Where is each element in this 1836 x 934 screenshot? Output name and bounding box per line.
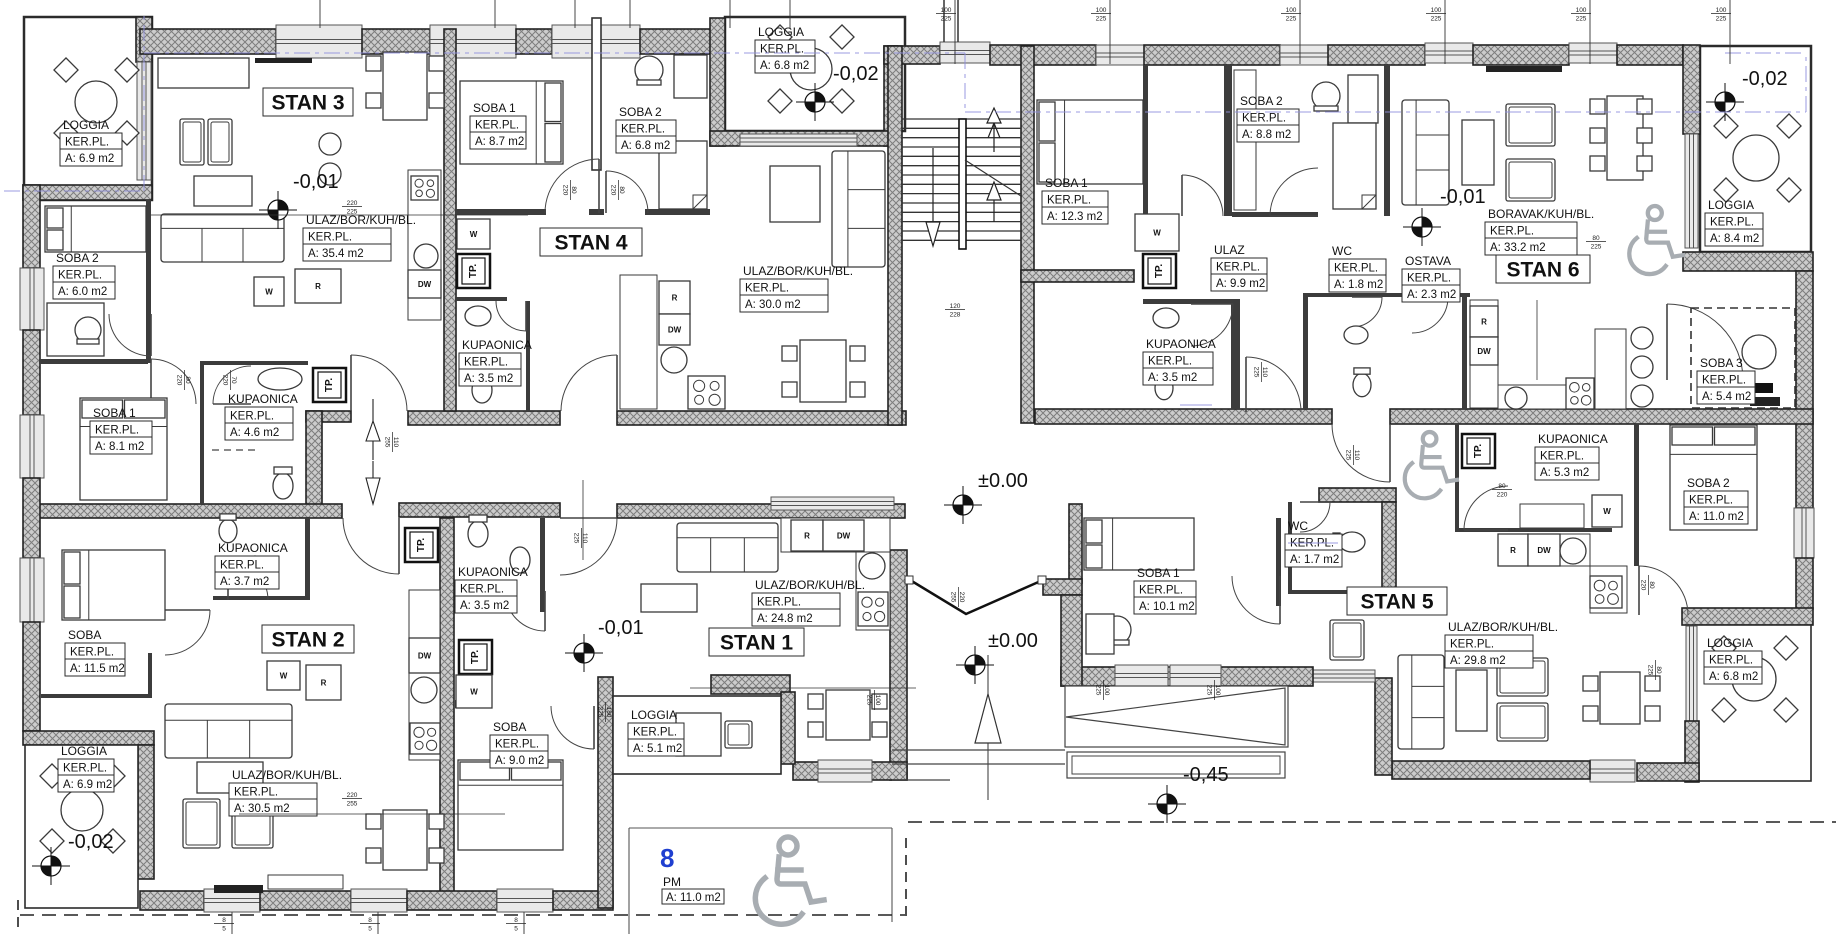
svg-text:A: 3.5 m2: A: 3.5 m2 bbox=[460, 600, 509, 612]
svg-text:SOBA 2: SOBA 2 bbox=[56, 251, 99, 265]
svg-text:W: W bbox=[265, 287, 273, 296]
svg-text:KUPAONICA: KUPAONICA bbox=[1538, 432, 1608, 446]
svg-text:KER.PL.: KER.PL. bbox=[621, 124, 665, 136]
svg-text:220: 220 bbox=[562, 185, 569, 196]
svg-text:A: 11.0 m2: A: 11.0 m2 bbox=[1689, 511, 1744, 523]
svg-text:100: 100 bbox=[1576, 7, 1587, 14]
svg-text:KER.PL.: KER.PL. bbox=[63, 763, 107, 775]
svg-text:-0,01: -0,01 bbox=[293, 171, 339, 193]
svg-text:DW: DW bbox=[837, 531, 851, 540]
svg-text:A: 6.8 m2: A: 6.8 m2 bbox=[621, 140, 670, 152]
svg-text:TP.: TP. bbox=[1154, 264, 1165, 278]
svg-text:OSTAVA: OSTAVA bbox=[1405, 254, 1451, 268]
svg-text:KER.PL.: KER.PL. bbox=[1702, 375, 1746, 387]
svg-text:R: R bbox=[672, 293, 678, 302]
svg-text:KER.PL.: KER.PL. bbox=[1490, 226, 1534, 238]
svg-text:WC: WC bbox=[1332, 244, 1352, 258]
svg-text:R: R bbox=[321, 678, 327, 687]
svg-text:225: 225 bbox=[1345, 450, 1352, 461]
svg-text:A: 1.8 m2: A: 1.8 m2 bbox=[1334, 279, 1383, 291]
svg-text:A: 5.1 m2: A: 5.1 m2 bbox=[633, 743, 682, 755]
svg-text:228: 228 bbox=[950, 312, 961, 319]
svg-text:A: 10.1 m2: A: 10.1 m2 bbox=[1139, 601, 1195, 613]
svg-text:LOGGIA: LOGGIA bbox=[631, 708, 677, 722]
svg-text:225: 225 bbox=[1591, 244, 1602, 251]
svg-text:R: R bbox=[1481, 317, 1487, 326]
svg-text:225: 225 bbox=[597, 707, 604, 718]
svg-text:LOGGIA: LOGGIA bbox=[758, 25, 804, 39]
svg-text:220: 220 bbox=[176, 375, 183, 386]
svg-text:100: 100 bbox=[941, 7, 952, 14]
svg-text:KER.PL.: KER.PL. bbox=[234, 787, 278, 799]
svg-text:110: 110 bbox=[1261, 367, 1268, 378]
svg-text:R: R bbox=[1510, 546, 1516, 555]
svg-text:225: 225 bbox=[866, 695, 873, 706]
svg-text:ULAZ/BOR/KUH/BL.: ULAZ/BOR/KUH/BL. bbox=[743, 264, 853, 278]
svg-text:SOBA 2: SOBA 2 bbox=[1240, 94, 1283, 108]
svg-text:110: 110 bbox=[392, 437, 399, 448]
svg-text:8: 8 bbox=[222, 917, 226, 924]
svg-text:SOBA 3: SOBA 3 bbox=[1700, 356, 1743, 370]
svg-text:A: 30.0 m2: A: 30.0 m2 bbox=[745, 299, 801, 311]
svg-text:-0,02: -0,02 bbox=[68, 831, 114, 853]
svg-text:A: 6.0 m2: A: 6.0 m2 bbox=[58, 286, 107, 298]
svg-text:KUPAONICA: KUPAONICA bbox=[462, 338, 532, 352]
svg-text:STAN 3: STAN 3 bbox=[271, 92, 344, 115]
svg-text:KUPAONICA: KUPAONICA bbox=[228, 392, 298, 406]
svg-text:KER.PL.: KER.PL. bbox=[308, 232, 352, 244]
svg-text:110: 110 bbox=[581, 533, 588, 544]
svg-text:225: 225 bbox=[1431, 16, 1442, 23]
svg-text:A: 8.4 m2: A: 8.4 m2 bbox=[1710, 233, 1759, 245]
svg-text:8: 8 bbox=[514, 917, 518, 924]
svg-text:220: 220 bbox=[222, 375, 229, 386]
svg-text:SOBA: SOBA bbox=[68, 628, 101, 642]
svg-text:100: 100 bbox=[1286, 7, 1297, 14]
svg-text:TP.: TP. bbox=[470, 650, 481, 664]
svg-text:KER.PL.: KER.PL. bbox=[1139, 585, 1183, 597]
svg-text:W: W bbox=[280, 671, 288, 680]
svg-text:A: 6.8 m2: A: 6.8 m2 bbox=[760, 60, 809, 72]
svg-text:5: 5 bbox=[222, 926, 226, 933]
svg-text:8: 8 bbox=[660, 843, 674, 873]
svg-text:KER.PL.: KER.PL. bbox=[1450, 639, 1494, 651]
svg-text:220: 220 bbox=[1497, 492, 1508, 499]
svg-text:W: W bbox=[470, 687, 478, 696]
svg-text:A: 2.3 m2: A: 2.3 m2 bbox=[1407, 289, 1456, 301]
svg-text:ULAZ/BOR/KUH/BL.: ULAZ/BOR/KUH/BL. bbox=[1448, 620, 1558, 634]
svg-text:A: 5.4 m2: A: 5.4 m2 bbox=[1702, 391, 1751, 403]
svg-text:DW: DW bbox=[1537, 546, 1551, 555]
svg-text:255: 255 bbox=[384, 437, 391, 448]
svg-text:KER.PL.: KER.PL. bbox=[460, 584, 504, 596]
svg-text:LOGGIA: LOGGIA bbox=[1708, 198, 1754, 212]
svg-text:80: 80 bbox=[1592, 235, 1600, 242]
svg-text:A: 11.5 m2: A: 11.5 m2 bbox=[70, 663, 125, 675]
svg-text:100: 100 bbox=[1096, 7, 1107, 14]
svg-text:225: 225 bbox=[1286, 16, 1297, 23]
svg-text:KER.PL.: KER.PL. bbox=[757, 597, 801, 609]
svg-text:STAN 5: STAN 5 bbox=[1360, 591, 1433, 614]
svg-text:KER.PL.: KER.PL. bbox=[65, 137, 109, 149]
svg-text:TP.: TP. bbox=[324, 378, 335, 392]
svg-text:225: 225 bbox=[1576, 16, 1587, 23]
svg-text:KER.PL.: KER.PL. bbox=[95, 425, 139, 437]
svg-text:A: 30.5 m2: A: 30.5 m2 bbox=[234, 803, 290, 815]
svg-text:120: 120 bbox=[950, 303, 961, 310]
svg-text:100: 100 bbox=[1214, 685, 1221, 696]
svg-text:KER.PL.: KER.PL. bbox=[495, 739, 539, 751]
svg-text:STAN 2: STAN 2 bbox=[271, 629, 344, 652]
svg-text:220: 220 bbox=[958, 592, 965, 603]
svg-text:DW: DW bbox=[418, 651, 432, 660]
svg-text:225: 225 bbox=[1716, 16, 1727, 23]
svg-text:KER.PL.: KER.PL. bbox=[1407, 273, 1451, 285]
svg-text:KER.PL.: KER.PL. bbox=[760, 44, 804, 56]
svg-text:110: 110 bbox=[1353, 450, 1360, 461]
svg-text:A: 9.9 m2: A: 9.9 m2 bbox=[1216, 278, 1265, 290]
svg-text:225: 225 bbox=[573, 533, 580, 544]
svg-text:A: 12.3 m2: A: 12.3 m2 bbox=[1047, 211, 1103, 223]
svg-text:W: W bbox=[470, 230, 478, 239]
svg-text:LOGGIA: LOGGIA bbox=[1707, 636, 1753, 650]
svg-text:225: 225 bbox=[1096, 16, 1107, 23]
svg-text:STAN 4: STAN 4 bbox=[554, 232, 627, 255]
svg-text:KUPAONICA: KUPAONICA bbox=[218, 541, 288, 555]
svg-text:KER.PL.: KER.PL. bbox=[70, 647, 114, 659]
svg-text:100: 100 bbox=[1716, 7, 1727, 14]
svg-text:-0,45: -0,45 bbox=[1183, 764, 1229, 786]
svg-text:-0,02: -0,02 bbox=[833, 63, 879, 85]
svg-text:LOGGIA: LOGGIA bbox=[61, 744, 107, 758]
svg-text:A: 3.7 m2: A: 3.7 m2 bbox=[220, 576, 269, 588]
svg-text:220: 220 bbox=[347, 792, 358, 799]
svg-text:225: 225 bbox=[941, 16, 952, 23]
svg-text:A: 11.0 m2: A: 11.0 m2 bbox=[666, 892, 721, 904]
svg-text:WC: WC bbox=[1288, 519, 1308, 533]
svg-text:BORAVAK/KUH/BL.: BORAVAK/KUH/BL. bbox=[1488, 207, 1594, 221]
svg-text:225: 225 bbox=[347, 209, 358, 216]
svg-text:W: W bbox=[1603, 507, 1611, 516]
svg-text:A: 6.9 m2: A: 6.9 m2 bbox=[65, 153, 114, 165]
svg-text:DW: DW bbox=[1477, 347, 1491, 356]
svg-text:A: 8.7 m2: A: 8.7 m2 bbox=[475, 136, 524, 148]
svg-text:KER.PL.: KER.PL. bbox=[1709, 655, 1753, 667]
svg-text:KUPAONICA: KUPAONICA bbox=[1146, 337, 1216, 351]
svg-text:180: 180 bbox=[605, 707, 612, 718]
svg-text:-0,02: -0,02 bbox=[1742, 68, 1788, 90]
svg-text:A: 6.9 m2: A: 6.9 m2 bbox=[63, 779, 112, 791]
svg-text:KER.PL.: KER.PL. bbox=[745, 283, 789, 295]
svg-text:ULAZ/BOR/KUH/BL.: ULAZ/BOR/KUH/BL. bbox=[755, 578, 865, 592]
svg-text:SOBA 2: SOBA 2 bbox=[619, 105, 662, 119]
svg-text:A: 3.5 m2: A: 3.5 m2 bbox=[464, 373, 513, 385]
svg-text:220: 220 bbox=[1640, 580, 1647, 591]
svg-text:100: 100 bbox=[1431, 7, 1442, 14]
svg-text:A: 1.7 m2: A: 1.7 m2 bbox=[1290, 554, 1339, 566]
svg-text:80: 80 bbox=[1655, 666, 1662, 674]
svg-text:A: 4.6 m2: A: 4.6 m2 bbox=[230, 427, 279, 439]
svg-text:ULAZ/BOR/KUH/BL.: ULAZ/BOR/KUH/BL. bbox=[232, 768, 342, 782]
svg-text:KER.PL.: KER.PL. bbox=[220, 560, 264, 572]
svg-text:A: 8.8 m2: A: 8.8 m2 bbox=[1242, 129, 1291, 141]
svg-text:KER.PL.: KER.PL. bbox=[58, 270, 102, 282]
svg-text:KER.PL.: KER.PL. bbox=[1216, 262, 1260, 274]
svg-text:KER.PL.: KER.PL. bbox=[475, 120, 519, 132]
svg-text:A: 29.8 m2: A: 29.8 m2 bbox=[1450, 655, 1506, 667]
svg-text:R: R bbox=[315, 282, 321, 291]
svg-text:SOBA 1: SOBA 1 bbox=[93, 406, 136, 420]
svg-text:220: 220 bbox=[610, 185, 617, 196]
svg-text:SOBA: SOBA bbox=[493, 720, 526, 734]
svg-text:DW: DW bbox=[418, 280, 432, 289]
svg-text:KER.PL.: KER.PL. bbox=[1710, 217, 1754, 229]
svg-text:KER.PL.: KER.PL. bbox=[1540, 451, 1584, 463]
svg-text:A: 33.2 m2: A: 33.2 m2 bbox=[1490, 242, 1546, 254]
svg-text:ULAZ: ULAZ bbox=[1214, 243, 1245, 257]
svg-text:KER.PL.: KER.PL. bbox=[1148, 356, 1192, 368]
svg-text:TP.: TP. bbox=[416, 538, 427, 552]
svg-text:SOBA 2: SOBA 2 bbox=[1687, 476, 1730, 490]
svg-text:SOBA 1: SOBA 1 bbox=[1045, 176, 1088, 190]
svg-text:KER.PL.: KER.PL. bbox=[1334, 263, 1378, 275]
svg-text:80: 80 bbox=[618, 186, 625, 194]
svg-text:KER.PL.: KER.PL. bbox=[464, 357, 508, 369]
svg-text:A: 35.4 m2: A: 35.4 m2 bbox=[308, 248, 364, 260]
svg-text:W: W bbox=[1153, 228, 1161, 237]
svg-text:-0,01: -0,01 bbox=[1440, 186, 1486, 208]
svg-text:A: 6.8 m2: A: 6.8 m2 bbox=[1709, 671, 1758, 683]
svg-text:5: 5 bbox=[368, 926, 372, 933]
svg-text:SOBA 1: SOBA 1 bbox=[473, 101, 516, 115]
svg-text:A: 9.0 m2: A: 9.0 m2 bbox=[495, 755, 544, 767]
svg-text:DW: DW bbox=[668, 325, 682, 334]
svg-text:8: 8 bbox=[368, 917, 372, 924]
svg-text:STAN 1: STAN 1 bbox=[720, 632, 793, 655]
svg-text:R: R bbox=[804, 531, 810, 540]
svg-text:-0,01: -0,01 bbox=[598, 617, 644, 639]
svg-text:225: 225 bbox=[1647, 665, 1654, 676]
svg-text:PM: PM bbox=[663, 875, 681, 889]
svg-text:80: 80 bbox=[1498, 483, 1506, 490]
svg-text:STAN 6: STAN 6 bbox=[1506, 259, 1579, 282]
svg-text:KUPAONICA: KUPAONICA bbox=[458, 565, 528, 579]
svg-text:5: 5 bbox=[514, 926, 518, 933]
svg-text:LOGGIA: LOGGIA bbox=[63, 118, 109, 132]
svg-text:70: 70 bbox=[230, 376, 237, 384]
svg-text:±0.00: ±0.00 bbox=[978, 470, 1028, 492]
svg-text:KER.PL.: KER.PL. bbox=[1047, 195, 1091, 207]
svg-text:A: 24.8 m2: A: 24.8 m2 bbox=[757, 613, 813, 625]
svg-text:A: 5.3 m2: A: 5.3 m2 bbox=[1540, 467, 1589, 479]
svg-text:KER.PL.: KER.PL. bbox=[1242, 113, 1286, 125]
svg-text:KER.PL.: KER.PL. bbox=[633, 727, 677, 739]
svg-text:±0.00: ±0.00 bbox=[988, 630, 1038, 652]
svg-text:225: 225 bbox=[1206, 685, 1213, 696]
svg-text:225: 225 bbox=[1253, 367, 1260, 378]
svg-text:225: 225 bbox=[1095, 685, 1102, 696]
svg-text:KER.PL.: KER.PL. bbox=[230, 411, 274, 423]
svg-text:A: 8.1 m2: A: 8.1 m2 bbox=[95, 441, 144, 453]
svg-text:KER.PL.: KER.PL. bbox=[1689, 495, 1733, 507]
svg-text:SOBA 1: SOBA 1 bbox=[1137, 566, 1180, 580]
svg-text:80: 80 bbox=[570, 186, 577, 194]
svg-text:TP.: TP. bbox=[1473, 444, 1484, 458]
svg-text:100: 100 bbox=[1103, 685, 1110, 696]
svg-text:A: 3.5 m2: A: 3.5 m2 bbox=[1148, 372, 1197, 384]
svg-text:255: 255 bbox=[950, 592, 957, 603]
svg-text:220: 220 bbox=[347, 200, 358, 207]
svg-text:80: 80 bbox=[184, 376, 191, 384]
svg-text:100: 100 bbox=[874, 695, 881, 706]
svg-text:255: 255 bbox=[347, 801, 358, 808]
svg-text:80: 80 bbox=[1648, 581, 1655, 589]
svg-text:TP.: TP. bbox=[468, 264, 479, 278]
